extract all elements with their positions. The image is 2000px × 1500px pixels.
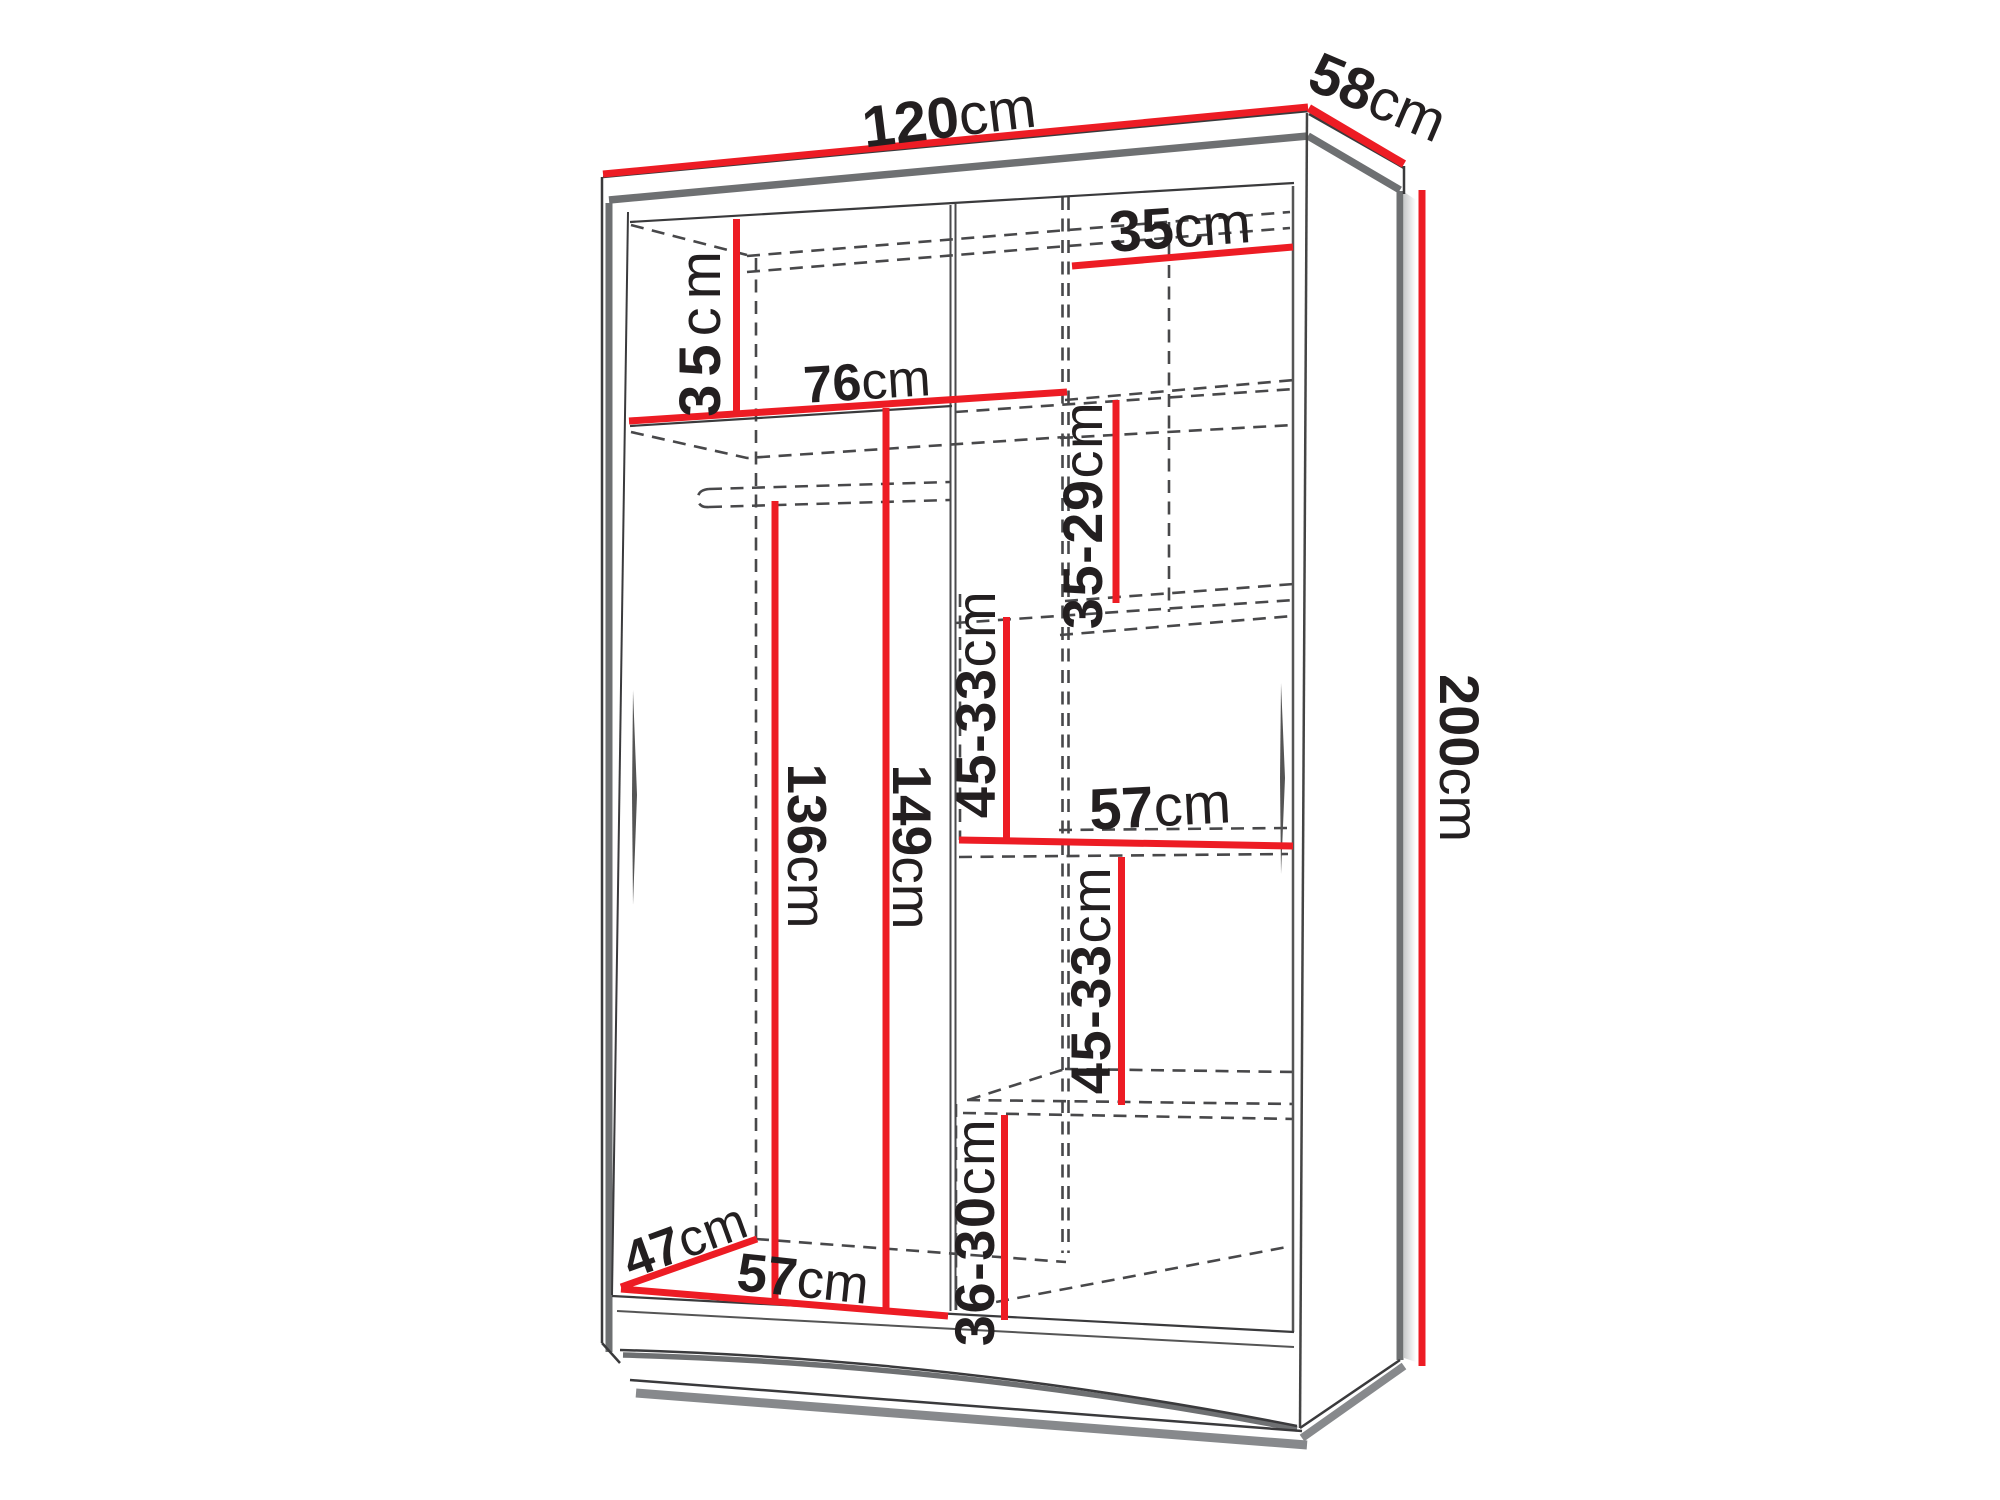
- svg-text:45-33cm: 45-33cm: [1059, 866, 1122, 1094]
- svg-text:136cm: 136cm: [776, 763, 838, 928]
- svg-text:200cm: 200cm: [1429, 674, 1492, 842]
- svg-text:76cm: 76cm: [802, 349, 932, 415]
- svg-text:35cm: 35cm: [1107, 190, 1253, 265]
- svg-text:35cm: 35cm: [668, 243, 733, 417]
- svg-text:45-33cm: 45-33cm: [944, 590, 1007, 818]
- svg-text:149cm: 149cm: [881, 764, 943, 929]
- svg-text:57cm: 57cm: [1087, 770, 1232, 842]
- svg-text:35-29cm: 35-29cm: [1051, 401, 1114, 629]
- svg-text:36-30cm: 36-30cm: [943, 1118, 1006, 1346]
